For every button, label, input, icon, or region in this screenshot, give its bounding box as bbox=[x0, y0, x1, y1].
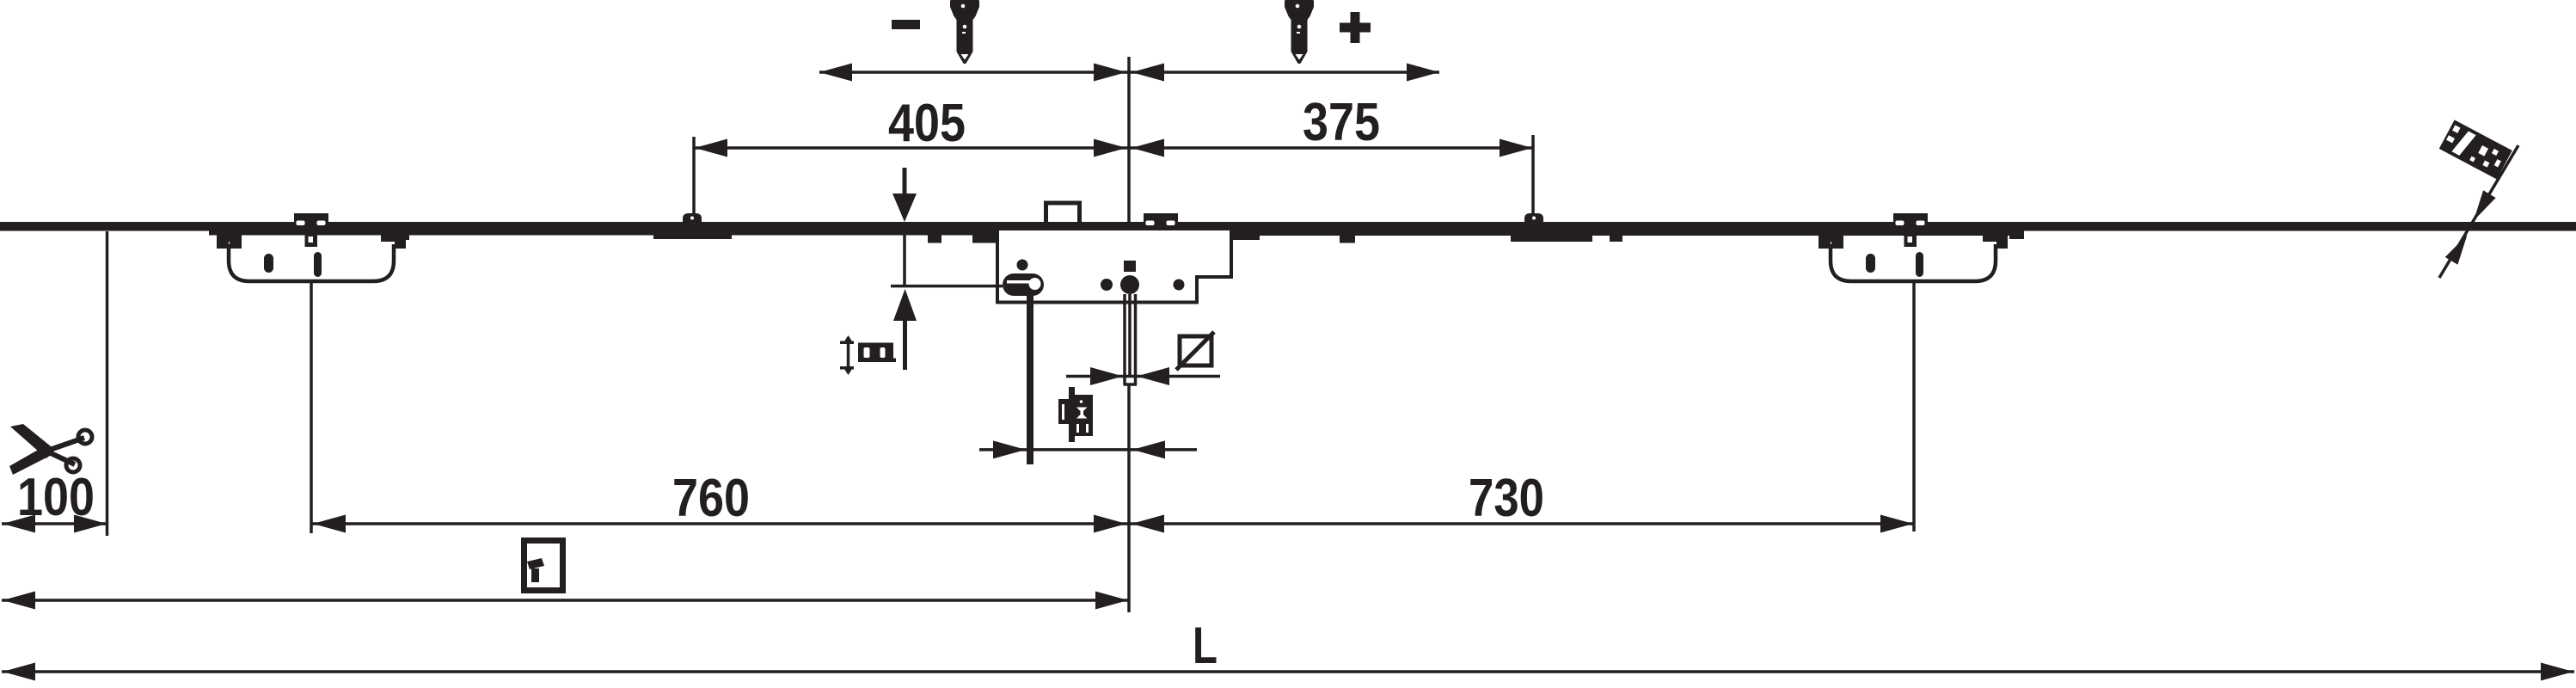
svg-text:375: 375 bbox=[1303, 93, 1380, 152]
svg-text:405: 405 bbox=[888, 94, 966, 153]
svg-text:730: 730 bbox=[1469, 469, 1544, 528]
svg-text:L: L bbox=[1193, 617, 1217, 674]
svg-text:760: 760 bbox=[672, 469, 750, 528]
